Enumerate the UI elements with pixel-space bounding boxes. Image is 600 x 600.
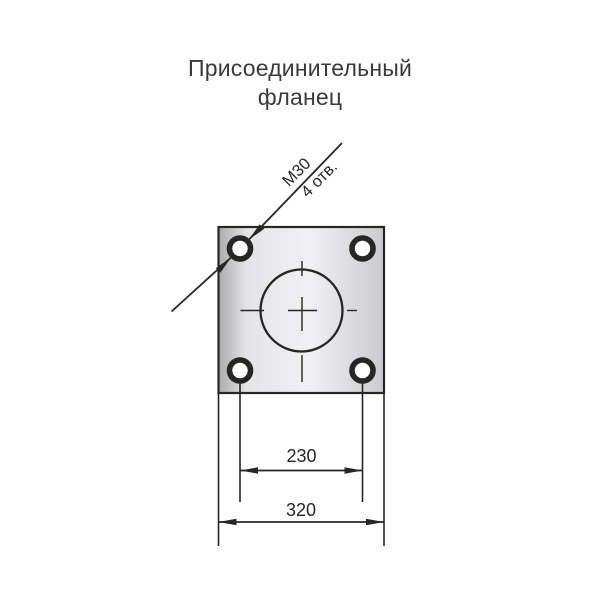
dimension-label-320: 320 — [286, 500, 316, 520]
dim-230-arrowhead-left-icon — [240, 467, 258, 473]
flange-technical-drawing: М30 4 отв. 230 320 — [0, 0, 600, 600]
flange-drawing-page: Присоединительный фланец — [0, 0, 600, 600]
dim-320-arrowhead-right-icon — [366, 519, 384, 525]
bolt-hole-bottom-right — [352, 360, 373, 381]
hole-callout-label-group: М30 4 отв. — [279, 143, 341, 205]
bolt-hole-top-right — [352, 238, 373, 259]
dim-320-arrowhead-left-icon — [219, 519, 237, 525]
bolt-hole-top-left — [230, 238, 251, 259]
dim-230-arrowhead-right-icon — [345, 467, 363, 473]
bolt-hole-bottom-left — [230, 360, 251, 381]
dimension-label-230: 230 — [286, 446, 316, 466]
